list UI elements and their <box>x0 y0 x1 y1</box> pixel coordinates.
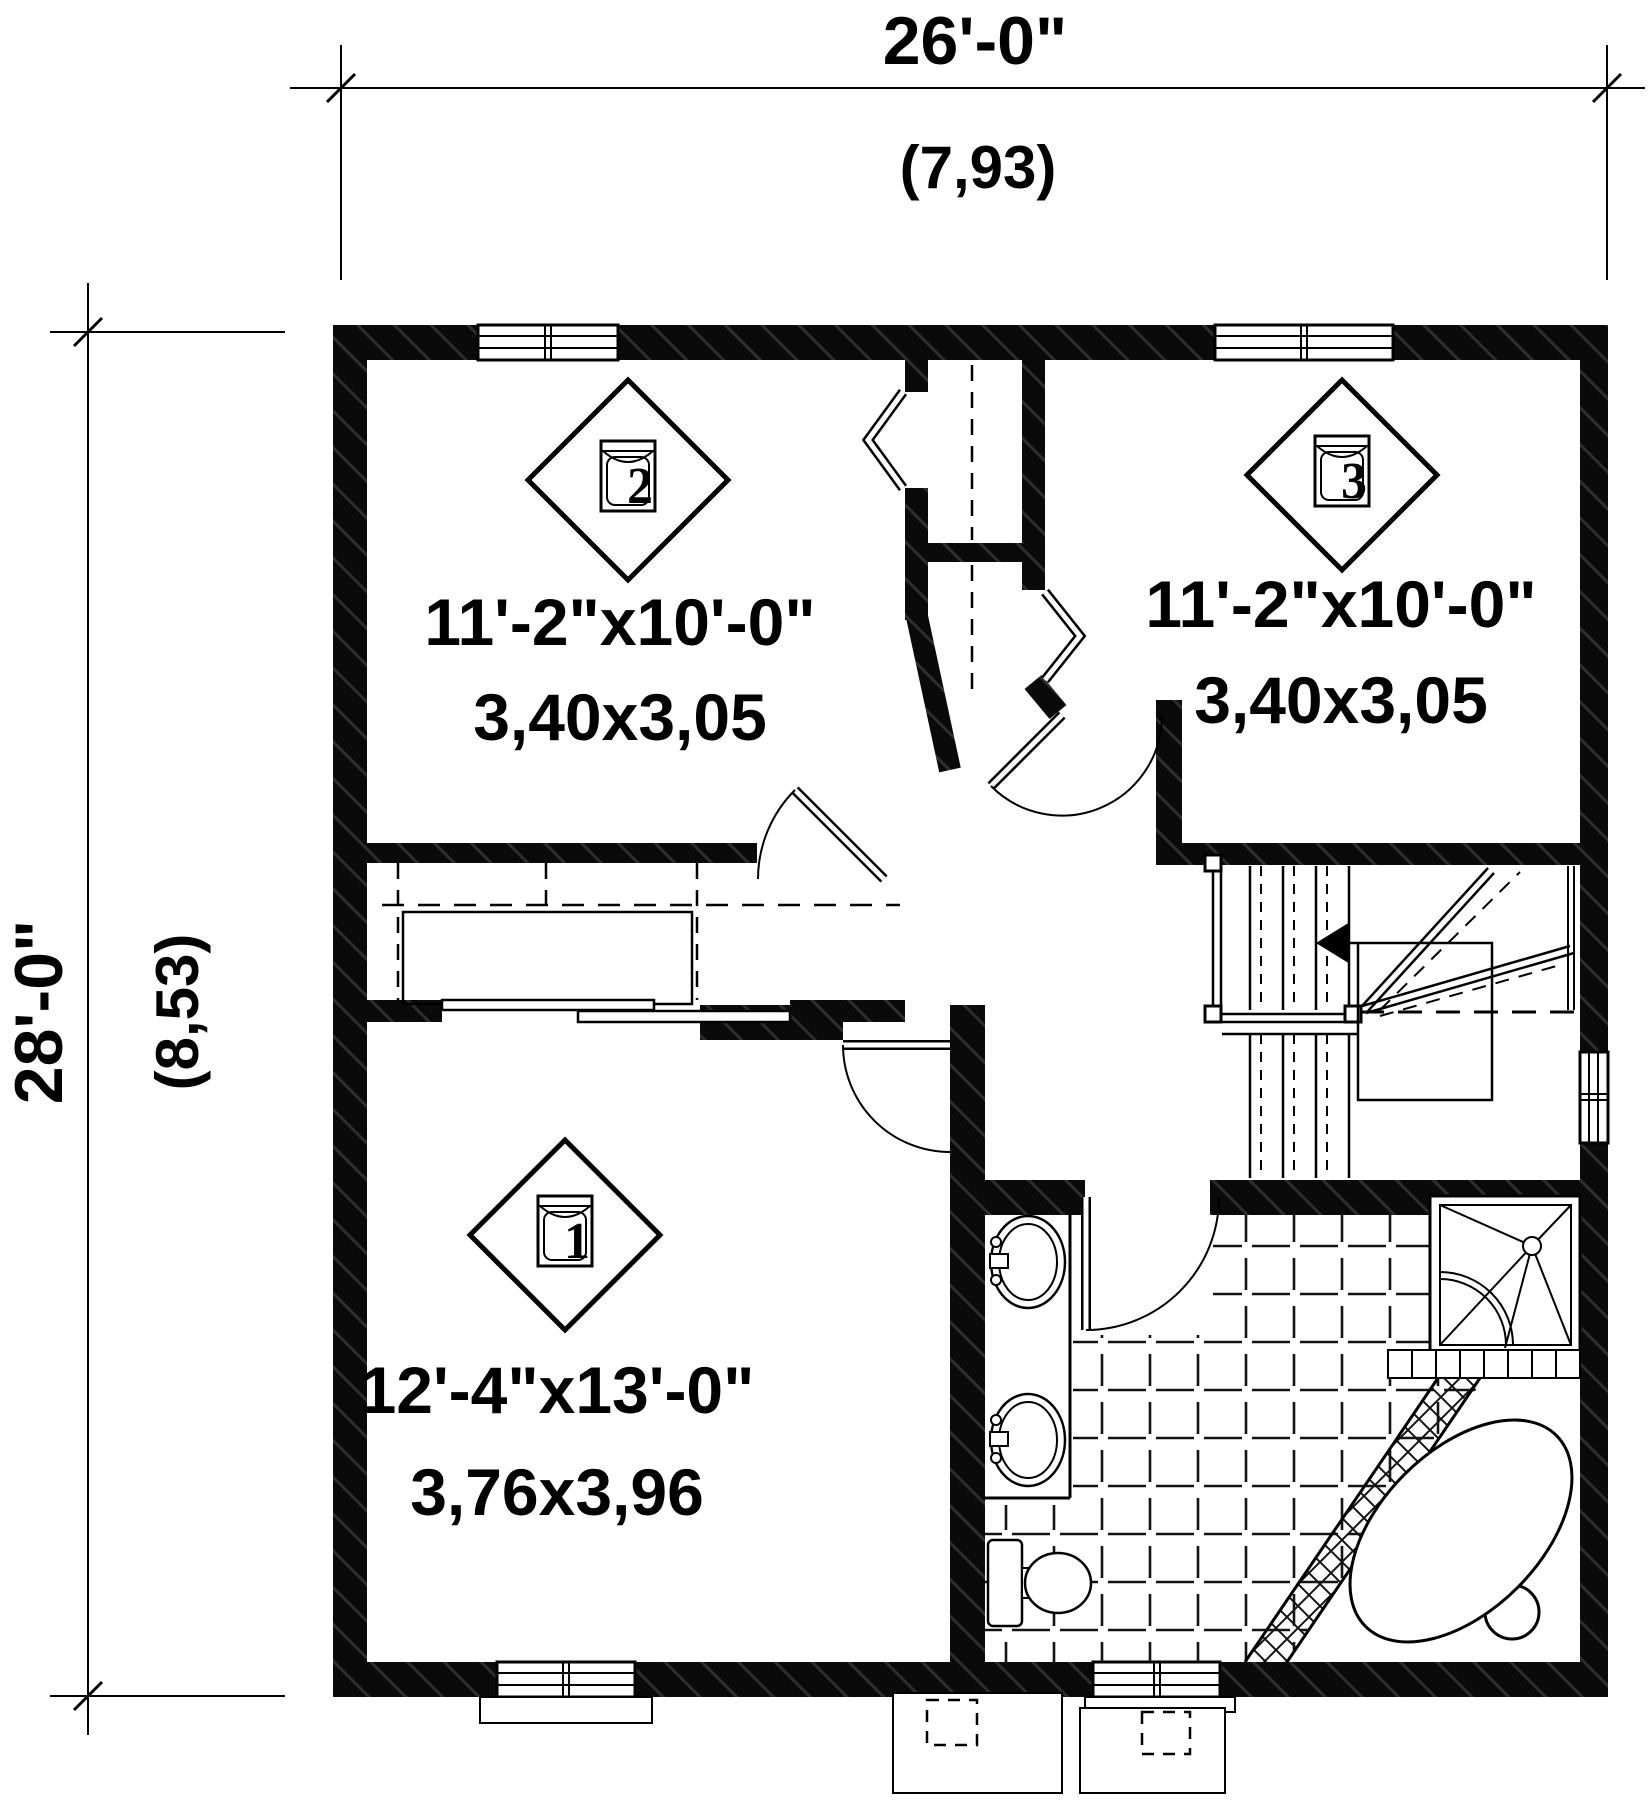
top-dimension-feet: 26'-0" <box>883 3 1068 79</box>
dimension-left: 28'-0" (8,53) <box>1 283 285 1735</box>
left-dimension-feet: 28'-0" <box>1 920 77 1105</box>
door-bedroom1 <box>843 1045 950 1152</box>
top-dimension-meters: (7,93) <box>900 134 1057 201</box>
window-bedroom1 <box>480 1662 652 1723</box>
bathroom <box>985 1196 1613 1683</box>
bifold-door-closet-left <box>868 392 903 488</box>
sliding-door-panel <box>578 1011 790 1022</box>
window-sill <box>480 1697 652 1723</box>
room-bedroom3: 3 11'-2"x10'-0" 3,40x3,05 <box>1145 380 1536 737</box>
toilet-bowl <box>1025 1553 1091 1613</box>
room-size-meters: 3,40x3,05 <box>473 680 767 754</box>
door-bedroom2 <box>758 790 884 879</box>
room-number: 2 <box>627 458 653 515</box>
newel-post <box>1205 855 1221 871</box>
window-bedroom2 <box>478 325 618 360</box>
newel-post <box>1205 1006 1221 1022</box>
room-number: 1 <box>564 1213 590 1270</box>
shower-drain-icon <box>1523 1237 1541 1255</box>
room-size-meters: 3,40x3,05 <box>1194 663 1488 737</box>
corner-shower <box>1430 1196 1580 1354</box>
room-bedroom2: 2 11'-2"x10'-0" 3,40x3,05 <box>424 380 815 754</box>
porch-outlines <box>893 1693 1225 1793</box>
stairs-direction-arrow-icon <box>1316 922 1350 964</box>
room-size-feet: 11'-2"x10'-0" <box>424 585 815 659</box>
sliding-door-panel <box>442 1000 654 1010</box>
stairs <box>1205 855 1578 1178</box>
winder-treads <box>1362 868 1574 1013</box>
bifold-door-closet-right <box>1045 592 1080 680</box>
faucet-icon <box>990 1254 1008 1268</box>
room-size-feet: 11'-2"x10'-0" <box>1145 567 1536 641</box>
room-number: 3 <box>1341 453 1367 510</box>
dimension-top: 26'-0" (7,93) <box>290 3 1645 280</box>
room-size-feet: 12'-4"x13'-0" <box>360 1353 755 1427</box>
room-bedroom1: 1 12'-4"x13'-0" 3,76x3,96 <box>360 1140 755 1529</box>
window-bathroom <box>1085 1662 1235 1712</box>
toilet-tank <box>988 1540 1022 1626</box>
closet-bedroom1 <box>382 863 900 1022</box>
floor-plan-drawing: 26'-0" (7,93) 28'-0" (8,53) <box>0 0 1651 1800</box>
window-stairwell <box>1580 1052 1608 1143</box>
floor-plan-page: 26'-0" (7,93) 28'-0" (8,53) <box>0 0 1651 1800</box>
left-dimension-meters: (8,53) <box>144 934 211 1091</box>
stair-landing <box>1358 943 1492 1100</box>
room-size-meters: 3,76x3,96 <box>410 1455 704 1529</box>
door-bedroom3 <box>991 715 1162 816</box>
faucet-icon <box>990 1432 1008 1446</box>
window-bedroom3 <box>1215 325 1393 360</box>
